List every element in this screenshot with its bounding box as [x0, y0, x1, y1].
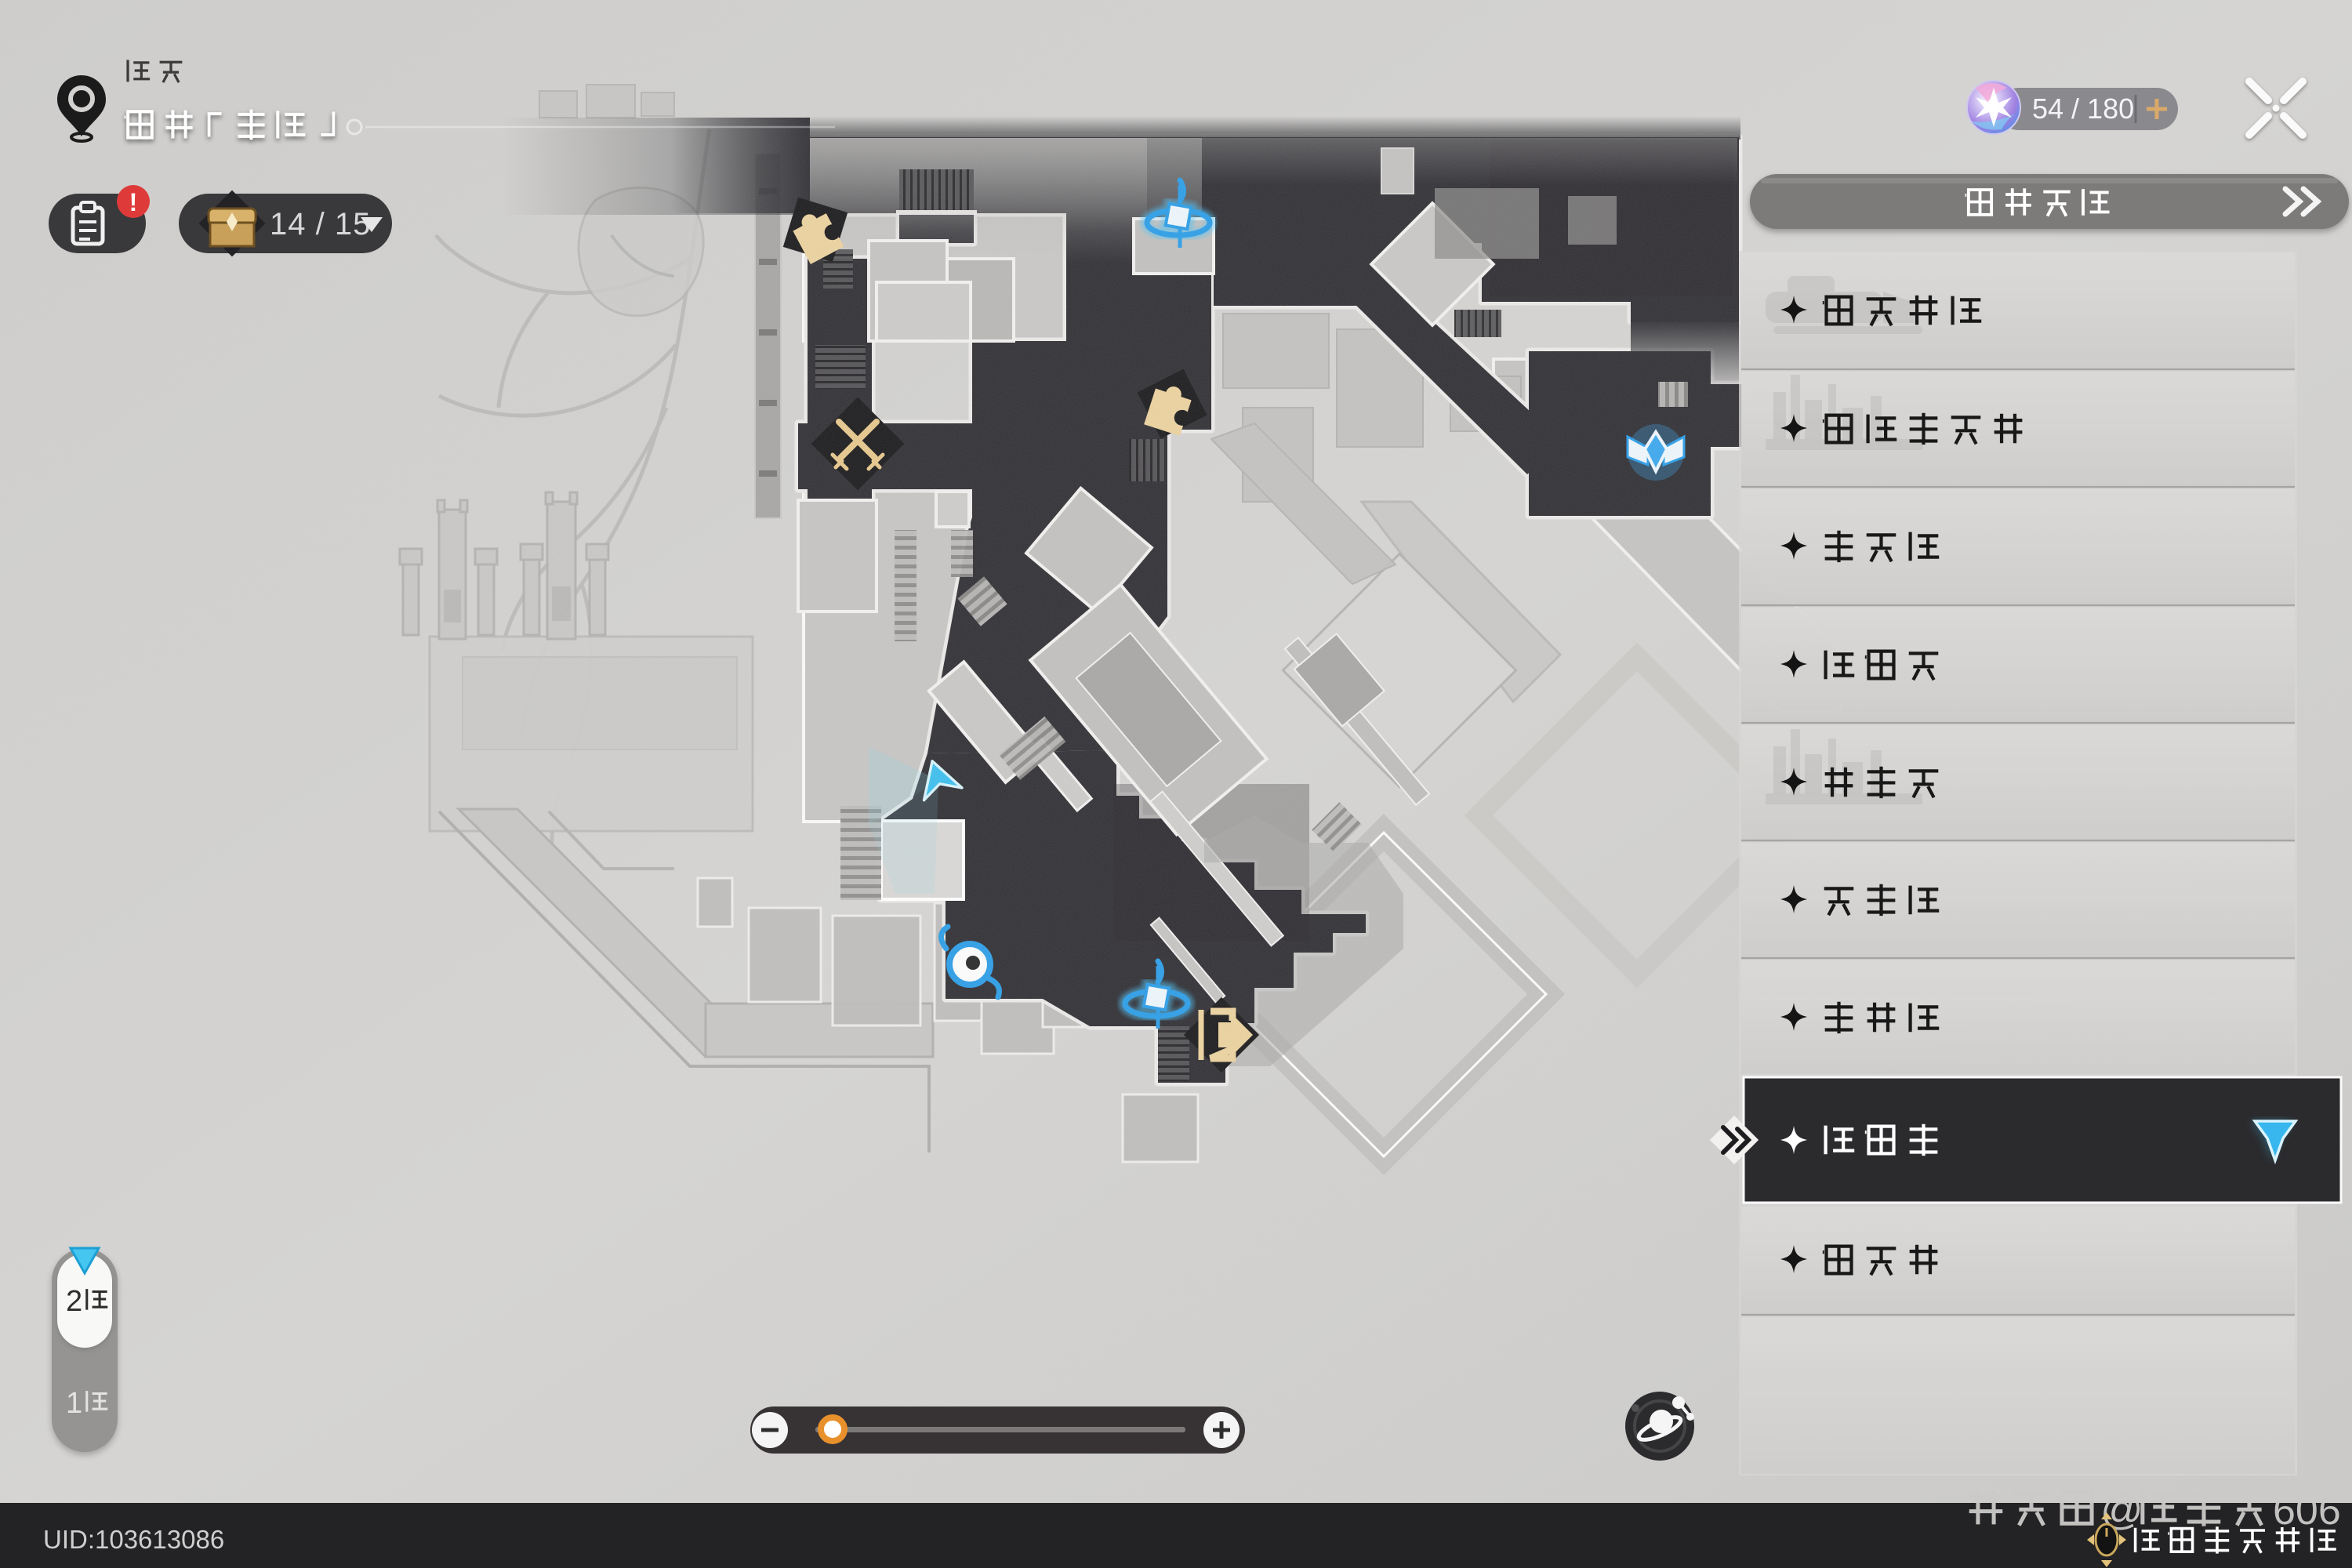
svg-text:UID:103613086: UID:103613086: [43, 1525, 224, 1554]
svg-text:2: 2: [66, 1285, 82, 1318]
svg-text:14 / 15: 14 / 15: [270, 207, 371, 241]
svg-text:!: !: [129, 188, 138, 216]
svg-text:606: 606: [2273, 1488, 2341, 1534]
svg-text:1: 1: [66, 1387, 82, 1420]
svg-text:54 / 180: 54 / 180: [2032, 93, 2134, 125]
